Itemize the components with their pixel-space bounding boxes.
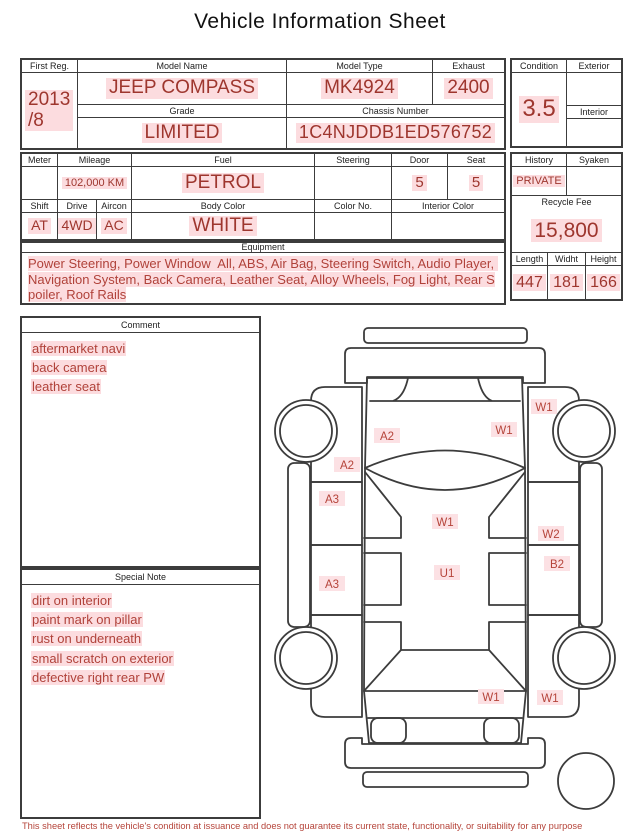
model-type-value: MK4924 — [287, 73, 433, 105]
front-left-wheel — [275, 400, 337, 462]
comment-line: leather seat — [31, 378, 250, 396]
rear-strip-shape — [363, 772, 528, 787]
svg-text:A3: A3 — [325, 579, 339, 591]
color-no-header: Color No. — [315, 200, 392, 213]
svg-text:W1: W1 — [495, 425, 512, 437]
page-title: Vehicle Information Sheet — [0, 10, 640, 34]
interior-value-empty — [567, 119, 621, 146]
meter-header: Meter — [22, 154, 58, 167]
special-note-body: dirt on interior paint mark on pillar ru… — [22, 585, 259, 695]
dimensions-row: Length Widht Height 447 181 166 — [512, 253, 621, 299]
svg-text:W1: W1 — [482, 692, 499, 704]
right-sill-shape — [580, 463, 602, 627]
comment-line: back camera — [31, 359, 250, 377]
svg-text:B2: B2 — [550, 559, 564, 571]
steering-header: Steering — [315, 154, 392, 167]
front-right-wheel — [553, 400, 615, 462]
fuel-header: Fuel — [132, 154, 315, 167]
damage-mark: B2 — [544, 556, 570, 571]
svg-text:A2: A2 — [380, 431, 394, 443]
aircon-header: Aircon — [97, 200, 132, 213]
damage-mark: A2 — [334, 457, 360, 472]
interior-header: Interior — [567, 106, 621, 119]
syaken-header: Syaken — [567, 154, 621, 167]
history-row: History Syaken PRIVATE — [512, 154, 621, 196]
damage-mark: W1 — [537, 690, 563, 705]
svg-text:W2: W2 — [542, 529, 559, 541]
chassis-number-value: 1C4NJDDB1ED576752 — [287, 118, 504, 148]
rear-glass-shape — [364, 650, 526, 691]
special-note-line: dirt on interior — [31, 592, 250, 610]
chassis-number-header: Chassis Number — [287, 105, 504, 118]
fuel-value: PETROL — [132, 167, 315, 200]
special-note-section: Special Note dirt on interior paint mark… — [20, 568, 261, 819]
color-no-value-empty — [315, 213, 392, 239]
specs-table: Meter Mileage Fuel Steering Door Seat 10… — [20, 152, 506, 241]
shift-value: AT — [22, 213, 58, 239]
svg-text:W1: W1 — [436, 517, 453, 529]
damage-mark: A3 — [319, 576, 345, 591]
special-note-line: paint mark on pillar — [31, 611, 250, 629]
first-reg-header: First Reg. — [22, 60, 78, 73]
exhaust-value: 2400 — [433, 73, 504, 105]
rear-left-wheel — [275, 627, 337, 689]
right-rear-door-shape — [528, 545, 579, 615]
damage-mark: W1 — [531, 399, 557, 414]
seat-header: Seat — [448, 154, 504, 167]
body-color-value: WHITE — [132, 213, 315, 239]
damage-marks: W1 W1 A2 A2 A3 W1 W2 B2 A3 U1 W1 W1 — [319, 399, 570, 705]
model-type-header: Model Type — [287, 60, 433, 73]
comment-section: Comment aftermarket navi back camera lea… — [20, 316, 261, 568]
interior-color-header: Interior Color — [392, 200, 504, 213]
svg-text:U1: U1 — [440, 568, 455, 580]
svg-text:W1: W1 — [541, 693, 558, 705]
exterior-header: Exterior — [567, 60, 621, 73]
svg-text:W1: W1 — [535, 402, 552, 414]
meter-value-empty — [22, 167, 58, 200]
condition-header: Condition — [512, 60, 567, 73]
car-body-outline — [345, 328, 545, 787]
recycle-fee-value: 15,800 — [512, 209, 621, 252]
grade-value: LIMITED — [78, 118, 287, 148]
model-name-value: JEEP COMPASS — [78, 73, 287, 105]
first-reg-value: 2013 /8 — [22, 73, 78, 148]
vehicle-information-sheet: Vehicle Information Sheet First Reg. Mod… — [0, 0, 640, 835]
steering-value-empty — [315, 167, 392, 200]
wheels — [275, 400, 615, 809]
damage-mark: U1 — [434, 565, 460, 580]
damage-mark: W1 — [478, 689, 504, 704]
left-taillight-shape — [371, 718, 406, 743]
mileage-value: 102,000 KM — [58, 167, 132, 200]
length-header: Length — [512, 253, 548, 266]
mileage-header: Mileage — [58, 154, 132, 167]
shift-header: Shift — [22, 200, 58, 213]
specs-row-2: Shift Drive Aircon Body Color Color No. … — [22, 200, 504, 239]
recycle-fee-cell: Recycle Fee 15,800 — [512, 196, 621, 253]
damage-mark: W1 — [491, 422, 517, 437]
history-box: History Syaken PRIVATE Recycle Fee 15,80… — [510, 152, 623, 301]
special-note-header: Special Note — [22, 570, 259, 585]
special-note-line: rust on underneath — [31, 630, 250, 648]
damage-mark: W1 — [432, 514, 458, 529]
body-color-header: Body Color — [132, 200, 315, 213]
comment-header: Comment — [22, 318, 259, 333]
damage-mark: A2 — [374, 428, 400, 443]
d-pillar-shapes — [364, 622, 526, 650]
svg-text:A3: A3 — [325, 494, 339, 506]
special-note-line: defective right rear PW — [31, 669, 250, 687]
front-strip-shape — [364, 328, 527, 343]
car-damage-diagram: W1 W1 A2 A2 A3 W1 W2 B2 A3 U1 W1 W1 — [264, 315, 640, 815]
width-value: 181 — [548, 266, 586, 299]
drive-header: Drive — [58, 200, 97, 213]
vehicle-identity-table: First Reg. Model Name Model Type Exhaust… — [20, 58, 506, 150]
exhaust-header: Exhaust — [433, 60, 504, 73]
right-taillight-shape — [484, 718, 519, 743]
left-sill-shape — [288, 463, 310, 627]
rear-right-wheel — [553, 627, 615, 689]
spare-wheel — [558, 753, 614, 809]
drive-value: 4WD — [58, 213, 97, 239]
specs-row-1: Meter Mileage Fuel Steering Door Seat 10… — [22, 154, 504, 200]
width-header: Widht — [548, 253, 586, 266]
equipment-header: Equipment — [22, 243, 504, 253]
equipment-section: Equipment Power Steering, Power Window A… — [20, 241, 506, 305]
interior-color-value-empty — [392, 213, 504, 239]
door-header: Door — [392, 154, 448, 167]
exterior-value-empty — [567, 73, 621, 106]
special-note-line: small scratch on exterior — [31, 650, 250, 668]
history-header: History — [512, 154, 567, 167]
recycle-fee-header: Recycle Fee — [512, 196, 621, 209]
equipment-text: Power Steering, Power Window All, ABS, A… — [22, 253, 504, 306]
condition-score: 3.5 — [512, 73, 567, 146]
history-value: PRIVATE — [512, 167, 567, 196]
svg-text:A2: A2 — [340, 460, 354, 472]
comment-line: aftermarket navi — [31, 340, 250, 358]
aircon-value: AC — [97, 213, 132, 239]
grade-header: Grade — [78, 105, 287, 118]
damage-mark: A3 — [319, 491, 345, 506]
disclaimer-text: This sheet reflects the vehicle's condit… — [22, 821, 637, 831]
damage-mark: W2 — [538, 526, 564, 541]
door-value: 5 — [392, 167, 448, 200]
model-name-header: Model Name — [78, 60, 287, 73]
condition-box: Condition Exterior 3.5 Interior — [510, 58, 623, 148]
height-value: 166 — [586, 266, 621, 299]
comment-body: aftermarket navi back camera leather sea… — [22, 333, 259, 405]
seat-value: 5 — [448, 167, 504, 200]
windshield-shape — [365, 451, 525, 491]
height-header: Height — [586, 253, 621, 266]
syaken-value-empty — [567, 167, 621, 196]
length-value: 447 — [512, 266, 548, 299]
